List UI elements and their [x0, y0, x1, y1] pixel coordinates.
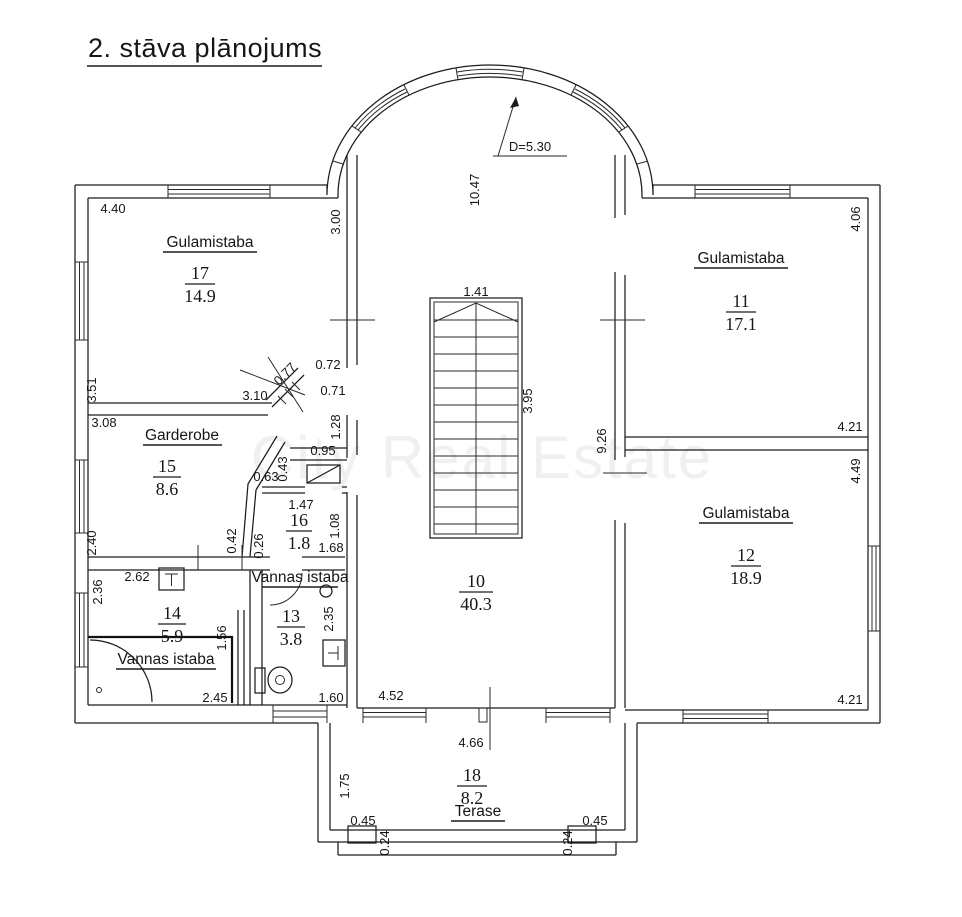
dim-nook-b: 0.71 — [320, 383, 345, 398]
dim-r17-bottom: 3.10 — [242, 388, 267, 403]
dim-r14-top: 2.62 — [124, 569, 149, 584]
dim-hall-right: 9.26 — [594, 428, 609, 453]
room-name: Gulamistaba — [166, 234, 253, 251]
dim-hall-bottom-a: 4.52 — [378, 688, 403, 703]
arrow-head — [510, 97, 519, 108]
room-name: Terase — [455, 803, 502, 820]
room-11-label: Gulamistaba 11 17.1 — [694, 250, 788, 334]
dim-r14-bottom: 2.45 — [202, 690, 227, 705]
dim-hall-bottom-b: 4.66 — [458, 735, 483, 750]
room-name: Vannas istaba — [251, 569, 348, 586]
dim-r11-right: 4.06 — [848, 206, 863, 231]
floor-plan-drawing: City Real Estate 2. stāva plānojums — [0, 0, 962, 917]
dim-stair-length: 3.95 — [520, 388, 535, 413]
room-10-label: 10 40.3 — [459, 571, 493, 614]
room-area: 40.3 — [460, 594, 492, 614]
dim-r13-bottom: 1.60 — [318, 690, 343, 705]
room-number: 17 — [191, 263, 209, 283]
dim-stair-width: 1.41 — [463, 284, 488, 299]
room-number: 10 — [467, 571, 485, 591]
sink-icon-room14 — [159, 568, 184, 590]
dim-r15-top: 3.08 — [91, 415, 116, 430]
dim-r17-right: 3.00 — [328, 209, 343, 234]
dim-hall-length: 10.47 — [467, 174, 482, 207]
dim-r12-right: 4.49 — [848, 458, 863, 483]
dim-r16-bottom: 1.68 — [318, 540, 343, 555]
room-16-label: 16 1.8 — [286, 510, 312, 553]
room-15-label: Garderobe 15 8.6 — [143, 427, 222, 499]
terrace-post-left — [348, 826, 376, 843]
room-name: Gulamistaba — [702, 505, 789, 522]
room-name: Vannas istaba — [117, 651, 214, 668]
room-12-label: Gulamistaba 12 18.9 — [699, 505, 793, 588]
toilet-icon — [255, 667, 292, 693]
room-area: 3.8 — [280, 629, 303, 649]
sink-icon-room13 — [323, 640, 345, 666]
dim-r16-slant: 0.42 — [224, 528, 239, 553]
dim-terrace-right-024: 0.24 — [560, 830, 575, 855]
room-name: Gulamistaba — [697, 250, 784, 267]
page-title: 2. stāva plānojums — [88, 33, 322, 63]
dim-r17-left: 3.51 — [84, 377, 99, 402]
dim-vest-slant: 0.63 — [253, 469, 278, 484]
dim-r12-bottom: 4.21 — [837, 692, 862, 707]
staircase — [430, 298, 522, 538]
drain-icon — [97, 688, 102, 693]
dim-r14-right: 1.56 — [214, 625, 229, 650]
room-area: 1.8 — [288, 533, 311, 553]
room-number: 14 — [163, 603, 181, 623]
room-18-label: 18 8.2 Terase — [451, 765, 505, 821]
room-area: 8.6 — [156, 479, 179, 499]
room-name: Garderobe — [145, 427, 219, 444]
room-area: 18.9 — [730, 568, 762, 588]
dim-terrace-left-024: 0.24 — [377, 830, 392, 855]
room-area: 14.9 — [184, 286, 216, 306]
dim-r13-right: 2.35 — [321, 606, 336, 631]
room-area: 5.9 — [161, 626, 184, 646]
room-17-label: Gulamistaba 17 14.9 — [163, 234, 257, 306]
room-number: 11 — [732, 291, 749, 311]
dim-terrace-left-045: 0.45 — [350, 813, 375, 828]
dim-r15-left: 2.40 — [84, 530, 99, 555]
dim-r11-bottom: 4.21 — [837, 419, 862, 434]
dim-terrace-left: 1.75 — [337, 773, 352, 798]
dim-r16-left: 0.26 — [251, 533, 266, 558]
room-area: 17.1 — [725, 314, 757, 334]
room-number: 15 — [158, 456, 176, 476]
dim-vest-top: 0.95 — [310, 443, 335, 458]
dim-nook-a: 0.72 — [315, 357, 340, 372]
dim-terrace-right-045: 0.45 — [582, 813, 607, 828]
inner-walls — [88, 77, 868, 710]
floor-plan-sheet: City Real Estate 2. stāva plānojums — [0, 0, 962, 917]
room-number: 12 — [737, 545, 755, 565]
room-number: 13 — [282, 606, 300, 626]
room-number: 18 — [463, 765, 481, 785]
dim-r17-top: 4.40 — [100, 201, 125, 216]
dim-arch-diameter: D=5.30 — [509, 139, 551, 154]
dim-r16-right: 1.08 — [327, 513, 342, 538]
bay-arch-windows — [333, 68, 648, 164]
room-number: 16 — [290, 510, 308, 530]
dim-hall-wall: 1.28 — [328, 414, 343, 439]
dim-r14-left: 2.36 — [90, 579, 105, 604]
dim-r16-top: 1.47 — [288, 497, 313, 512]
